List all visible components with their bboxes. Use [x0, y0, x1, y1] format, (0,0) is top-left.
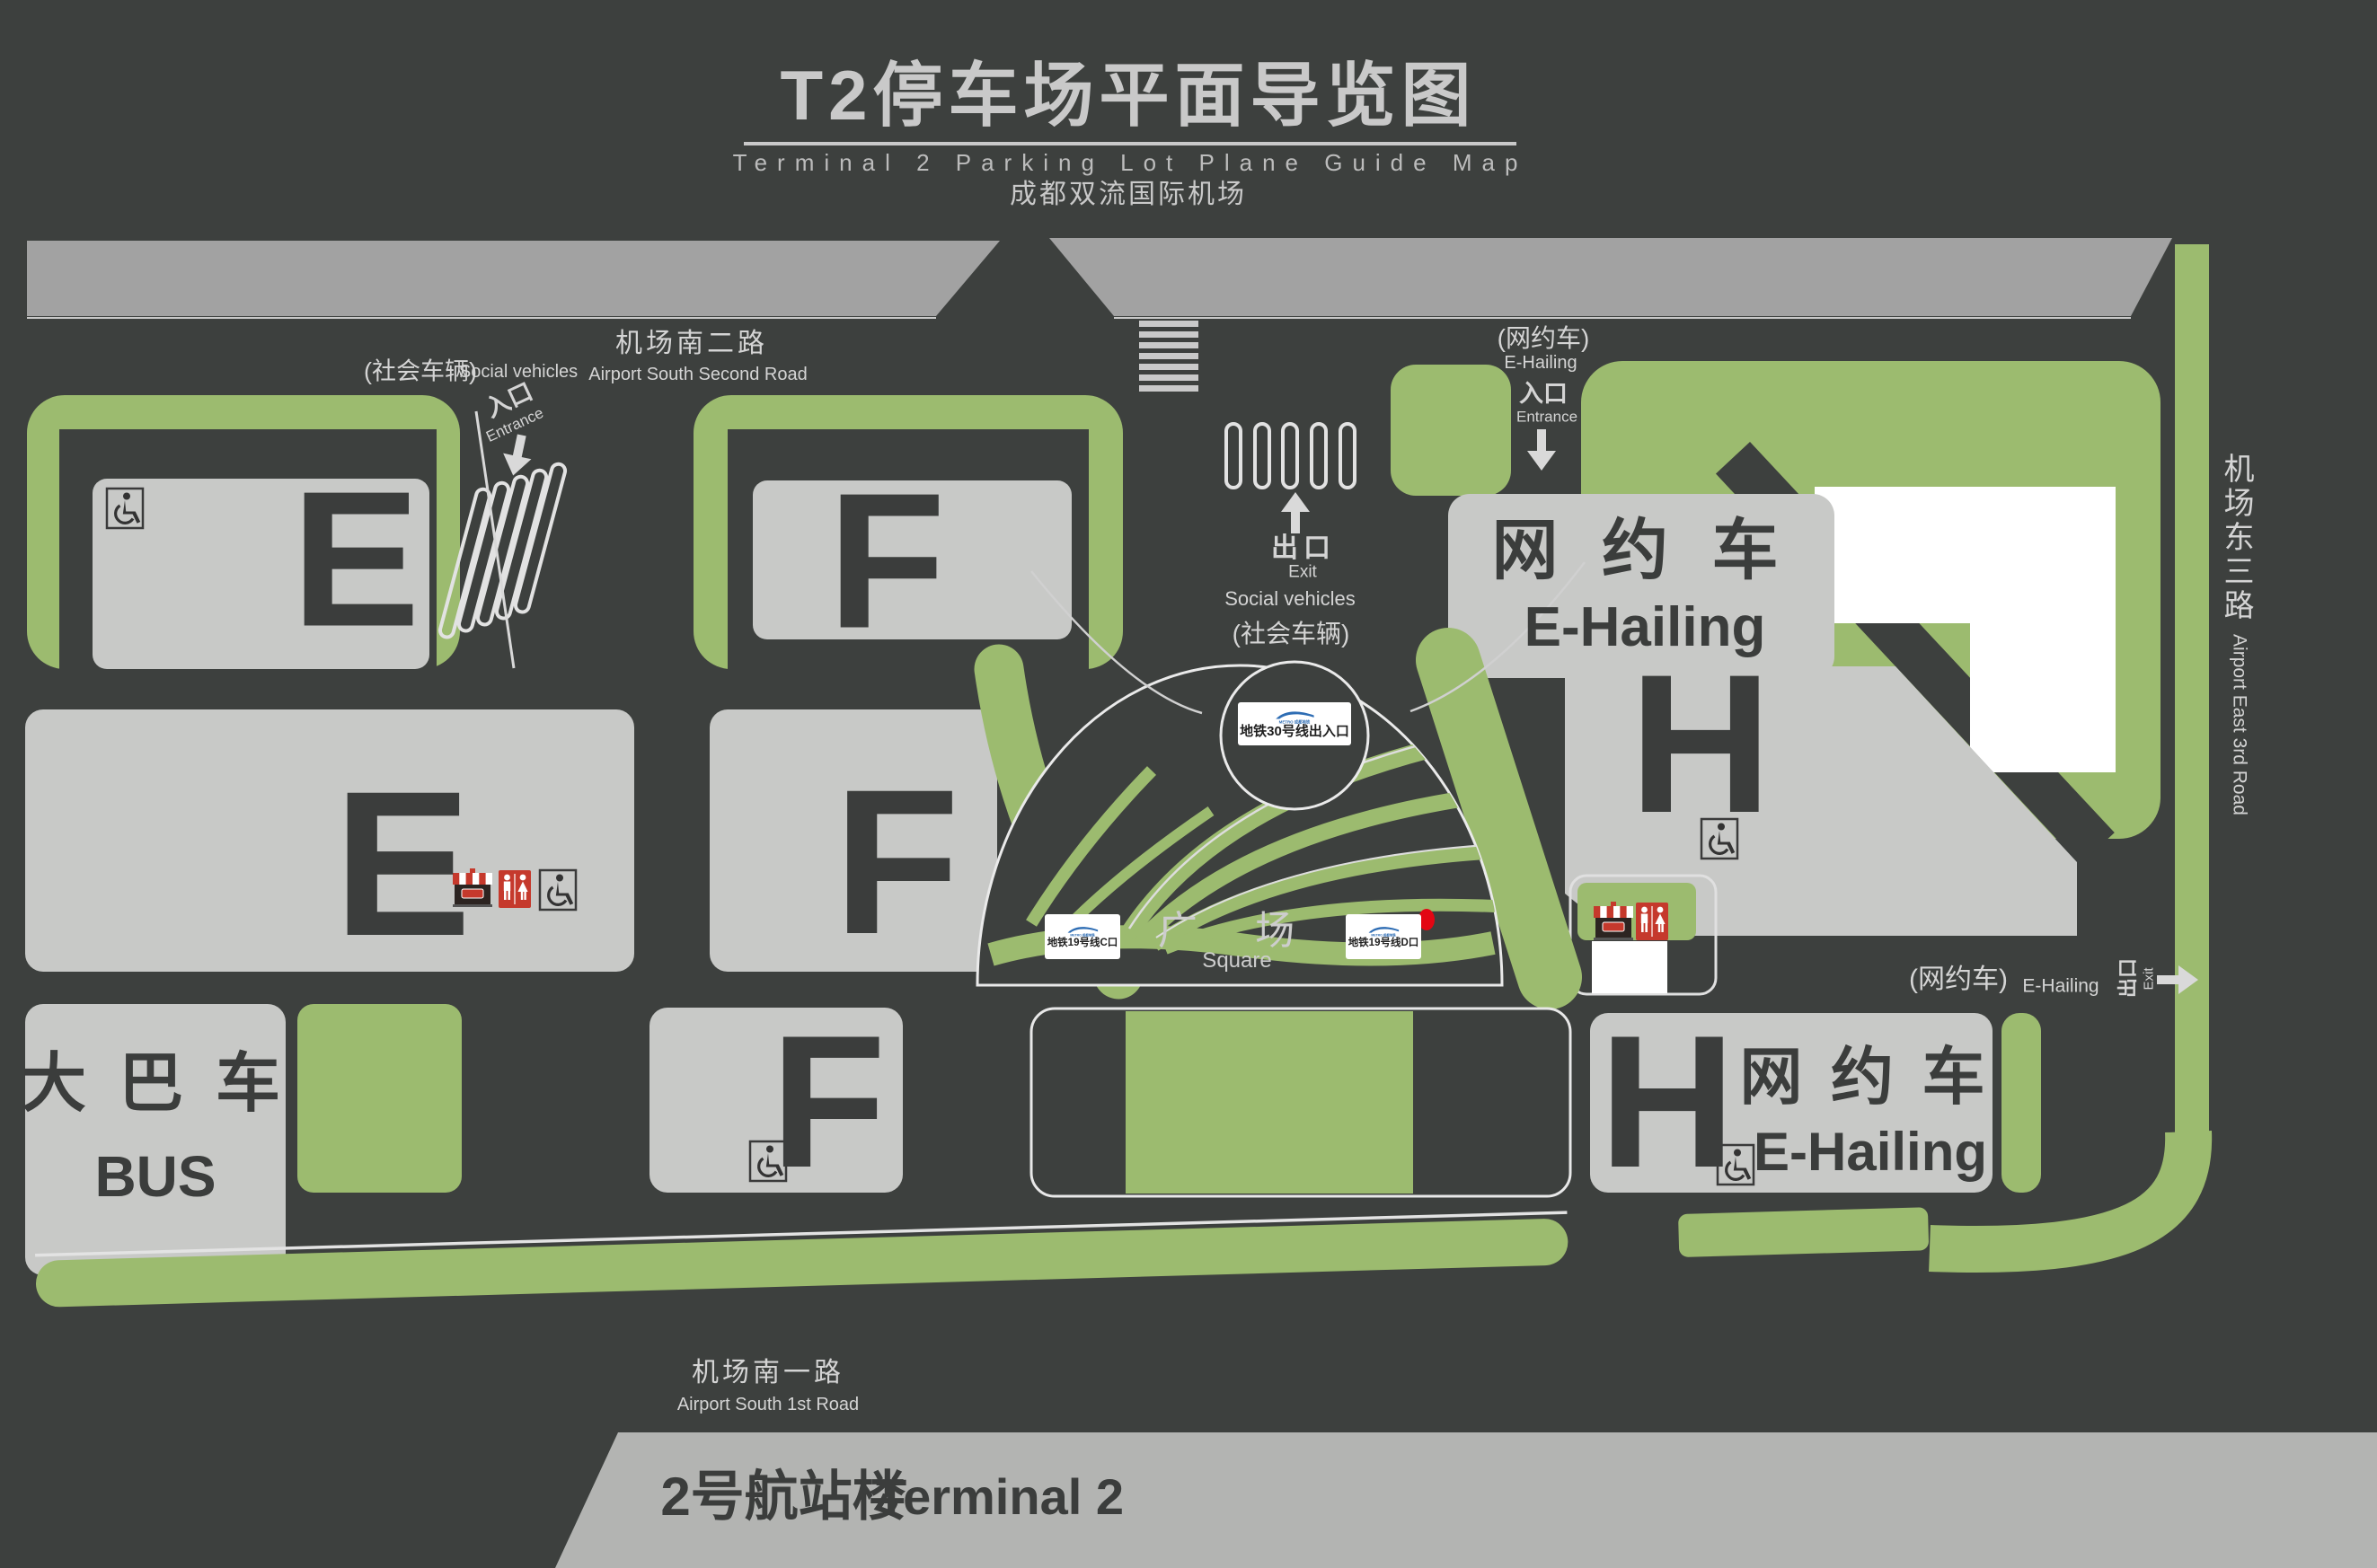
gate-label-social-en: Social vehicles — [1224, 589, 1356, 609]
road-label-south1-zh: 机场南一路 — [692, 1360, 844, 1387]
gate-label-social-en: Social vehicles — [459, 363, 578, 381]
entrance-arrow-icon — [1527, 429, 1556, 471]
exit-label-en: Exit — [2143, 967, 2156, 990]
ehailing-sign-zh-top: 网 约 车 — [1491, 517, 1790, 584]
toll-lanes-exit — [1226, 424, 1355, 488]
zone-letter-f-top: F — [827, 464, 945, 657]
parking-area-bus — [25, 1004, 286, 1275]
page-title: T2停车场平面导览图 — [780, 60, 1476, 130]
bus-zone-label-en: BUS — [94, 1148, 216, 1205]
terminal-label-zh: 2号航站楼 — [660, 1470, 906, 1524]
metro-line19d-text: 地铁19号线D口 — [1348, 938, 1419, 948]
bus-zone-label-zh: 大 巴 车 — [22, 1052, 287, 1116]
zebra-crossing — [1139, 321, 1198, 392]
green-island — [1391, 365, 1511, 496]
shop-icon — [1594, 902, 1633, 940]
entrance-arrow-icon — [499, 432, 536, 479]
green-island — [297, 1004, 462, 1193]
road-airport-south-2nd — [27, 238, 2172, 318]
green-island — [2001, 1013, 2041, 1193]
gate-label-ehailing-en: E-Hailing — [1504, 354, 1577, 372]
restroom-icon — [499, 870, 531, 908]
metro-line30-entrance-label: METRO 成都地铁 地铁30号线出入口 — [1238, 702, 1351, 745]
plaza-label-en: Square — [1202, 950, 1271, 972]
road-label-south2-zh: 机场南二路 — [615, 330, 768, 357]
svg-text:METRO 成都地铁: METRO 成都地铁 — [1371, 933, 1396, 938]
zone-letter-e-top: E — [291, 462, 420, 656]
building-footprint — [1592, 941, 1667, 993]
gate-label-social-zh: (社会车辆) — [1233, 621, 1350, 647]
zone-letter-h-top: H — [1630, 645, 1772, 842]
metro-logo-icon: METRO 成都地铁 — [1366, 925, 1401, 938]
ehailing-sign-en-top: E-Hailing — [1524, 600, 1766, 656]
zone-letter-f-mid: F — [834, 759, 960, 965]
terminal-label-en: Terminal 2 — [876, 1472, 1124, 1522]
exit-label-zh: 出口 — [2118, 958, 2138, 998]
title-underline — [744, 142, 1516, 145]
zone-letter-e-mid: E — [333, 761, 471, 967]
road-label-east3-en: Airport East 3rd Road — [2231, 634, 2249, 815]
exit-arrow-icon — [1281, 492, 1310, 533]
building-footprint — [1970, 487, 2116, 772]
exit-label-en: Exit — [1288, 564, 1317, 581]
page-title-en: Terminal 2 Parking Lot Plane Guide Map — [733, 151, 1528, 174]
airport-name: 成都双流国际机场 — [1010, 181, 1247, 208]
metro-line19d-label: METRO 成都地铁 地铁19号线D口 — [1346, 914, 1421, 959]
zone-letter-h-bottom: H — [1599, 1008, 1736, 1196]
exit-label-zh: 出口 — [1271, 535, 1336, 562]
entrance-label-en: Entrance — [1516, 410, 1577, 425]
road-label-south2-en: Airport South Second Road — [588, 366, 808, 383]
zone-letter-f-bottom: F — [771, 1008, 886, 1196]
road-label-south1-en: Airport South 1st Road — [677, 1396, 859, 1414]
metro-line19c-label: METRO 成都地铁 地铁19号线C口 — [1045, 914, 1120, 959]
gate-label-ehailing-en: E-Hailing — [2022, 977, 2099, 996]
svg-text:METRO 成都地铁: METRO 成都地铁 — [1070, 933, 1095, 938]
terminal-curb-strip — [1031, 1009, 1570, 1196]
road-label-east3-zh: 机场东三路 — [2221, 453, 2251, 623]
parking-area-e-mid — [25, 709, 634, 972]
metro-logo-icon: METRO 成都地铁 — [1273, 709, 1316, 725]
gate-label-ehailing-zh: (网约车) — [1909, 966, 2008, 993]
entrance-label-zh: 入口 — [1519, 383, 1568, 407]
ehailing-sign-en-bottom: E-Hailing — [1754, 1125, 1987, 1179]
ehailing-sign-zh-bottom: 网 约 车 — [1740, 1045, 1991, 1108]
metro-line30-text: 地铁30号线出入口 — [1240, 725, 1349, 739]
restroom-icon — [1636, 903, 1668, 940]
parking-map-canvas: T2停车场平面导览图 Terminal 2 Parking Lot Plane … — [0, 0, 2377, 1568]
metro-line19c-text: 地铁19号线C口 — [1047, 938, 1118, 948]
plaza-label-zh: 广 场 — [1158, 912, 1318, 951]
gate-label-ehailing-zh: (网约车) — [1498, 326, 1590, 351]
metro-logo-icon: METRO 成都地铁 — [1065, 925, 1100, 938]
